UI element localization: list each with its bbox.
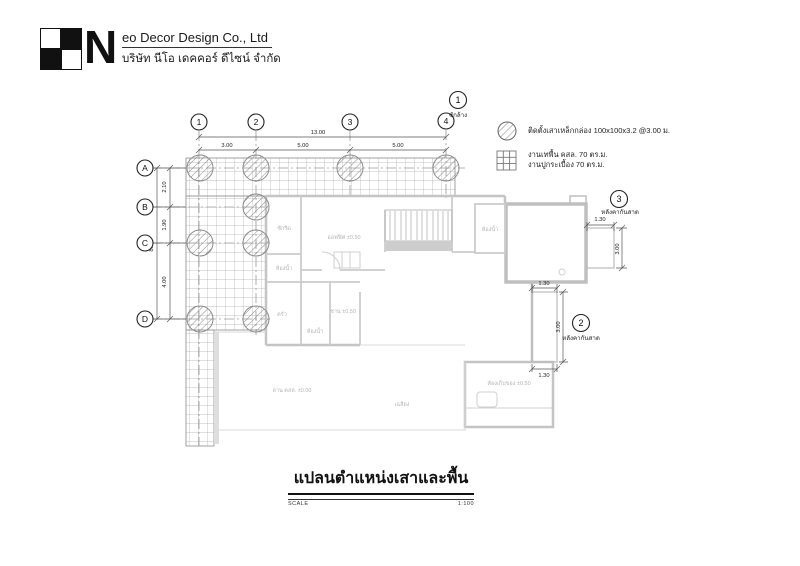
dim-awning3-width: 1.30 — [594, 217, 605, 223]
room-label: ออฟฟิศ ±0.50 — [327, 234, 360, 241]
grid-column-label: 1 — [197, 117, 202, 127]
partition-walls — [266, 196, 475, 345]
scale-row: SCALE 1:100 — [288, 501, 474, 507]
room-label: ห้องน้ำ — [307, 327, 323, 335]
column-symbol — [187, 306, 213, 332]
dim-top-seg: 3.00 — [221, 143, 232, 149]
scale-value: 1:100 — [458, 501, 474, 507]
awning-3 — [587, 228, 614, 268]
scale-label: SCALE — [288, 501, 309, 507]
callout-number: 2 — [578, 318, 583, 328]
tile-area-walkway — [186, 330, 214, 446]
stair-treads — [390, 211, 448, 240]
grid-row-label: C — [142, 238, 148, 248]
awning-2 — [532, 292, 557, 362]
callout-number: 3 — [616, 194, 621, 204]
dim-top-seg: 5.00 — [392, 143, 403, 149]
dim-awning2-width-top: 1.30 — [538, 281, 549, 287]
dim-awning3-height: 3.00 — [615, 243, 621, 254]
room-label: ห้องน้ำ — [482, 225, 498, 233]
grid-row-label: A — [142, 163, 148, 173]
column-symbol — [243, 194, 269, 220]
closet — [334, 252, 360, 268]
dim-left-seg: 4.00 — [162, 276, 168, 287]
callouts: 1 ซักล้าง 3 หลังคากันสาด 2 หลังคากันสาด — [449, 92, 639, 343]
drain-symbol — [559, 269, 565, 275]
grid-column-label: 3 — [348, 117, 353, 127]
tile-areas — [186, 158, 455, 446]
dim-top-seg: 5.00 — [297, 143, 308, 149]
grid-column-label: 4 — [444, 116, 449, 126]
room-label: ชาน ±0.50 — [330, 308, 356, 315]
title-underline — [288, 493, 474, 500]
callout-label: หลังคากันสาด — [562, 335, 600, 342]
callout-label: หลังคากันสาด — [601, 209, 639, 216]
room-label: ห้องเก็บของ ±0.50 — [487, 379, 530, 387]
room-label: ลาน คสล. ±0.00 — [273, 387, 312, 394]
terrace-outline — [214, 332, 466, 430]
stair-landing — [386, 241, 452, 251]
grid-column-label: 2 — [254, 117, 259, 127]
column-symbol — [337, 155, 363, 181]
dim-left-seg: 2.10 — [162, 181, 168, 192]
grid-bubbles: 1 2 3 4 A B C D — [137, 113, 454, 327]
storage-room-walls — [465, 362, 553, 427]
column-symbol — [243, 155, 269, 181]
fixture — [477, 392, 497, 407]
column-symbol — [433, 155, 459, 181]
staircase — [385, 210, 452, 251]
existing-room-walls — [506, 204, 586, 282]
column-symbol — [187, 230, 213, 256]
drawing-sheet: N eo Decor Design Co., Ltd บริษัท นีโอ เ… — [0, 0, 800, 566]
walls — [214, 196, 586, 430]
tile-area-top-band — [186, 158, 455, 196]
grid-row-label: D — [142, 314, 148, 324]
dim-awning2-width-bottom: 1.30 — [538, 373, 549, 379]
room-label: ห้องน้ำ — [276, 264, 292, 272]
callout-label: ซักล้าง — [449, 111, 467, 119]
door-swing-arc — [322, 252, 340, 270]
dim-awning2-height: 3.00 — [556, 321, 562, 332]
drawing-title: แปลนตำแหน่งเสาและพื้น — [288, 466, 474, 491]
walkway-edge-shadow — [214, 332, 219, 444]
callout-number: 1 — [455, 95, 460, 105]
room-label: ครัว — [277, 311, 287, 318]
column-symbol — [243, 306, 269, 332]
dim-left-seg: 1.90 — [162, 219, 168, 230]
column-symbol — [187, 155, 213, 181]
title-block: แปลนตำแหน่งเสาและพื้น SCALE 1:100 — [288, 466, 474, 507]
column-symbol — [243, 230, 269, 256]
room-label: เฉลียง — [395, 401, 410, 408]
room-label: ซักรีด — [277, 225, 291, 232]
grid-row-label: B — [142, 202, 148, 212]
dim-top-total: 13.00 — [311, 130, 326, 136]
